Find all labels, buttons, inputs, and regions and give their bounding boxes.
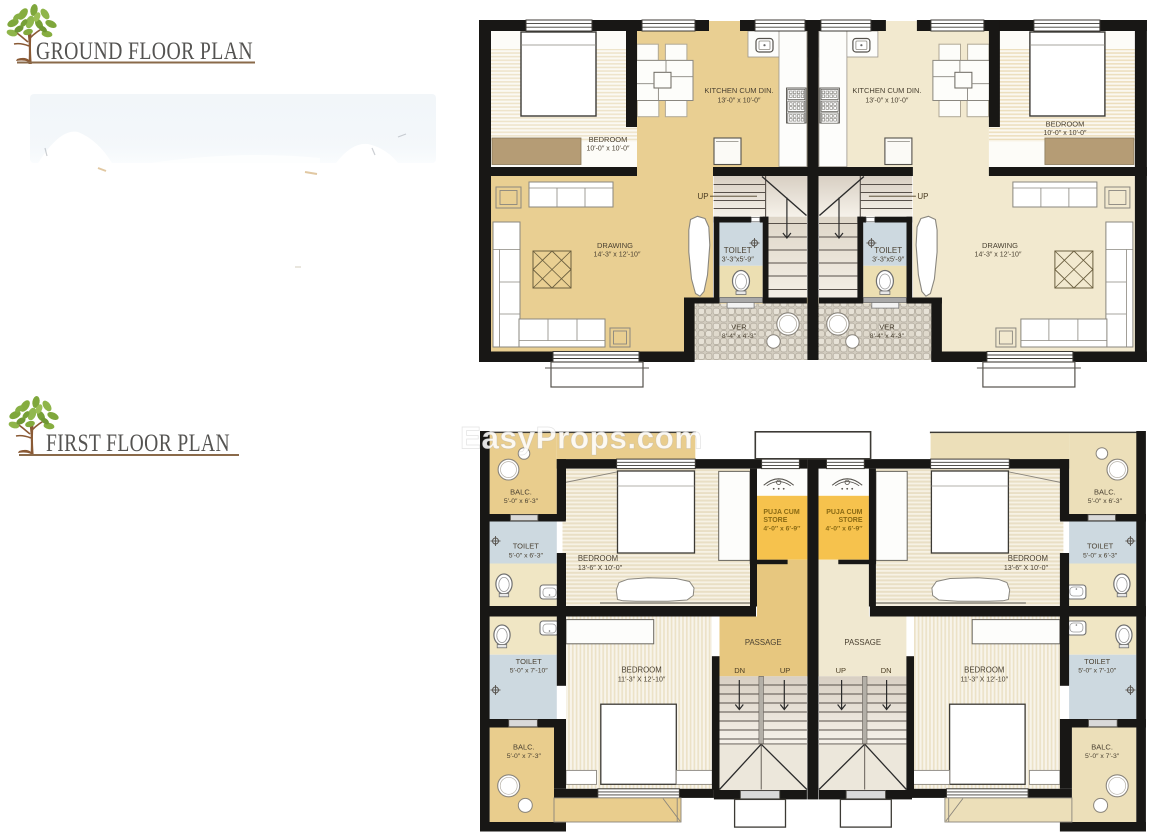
svg-text:8′-4″ x 4′-3″: 8′-4″ x 4′-3″ <box>722 333 757 340</box>
svg-text:DRAWING: DRAWING <box>982 241 1018 250</box>
svg-text:13′-0″ x 10′-0″: 13′-0″ x 10′-0″ <box>718 98 762 105</box>
svg-text:13′-6″ X 10′-0″: 13′-6″ X 10′-0″ <box>578 565 623 572</box>
svg-text:PASSAGE: PASSAGE <box>745 638 782 647</box>
svg-text:KITCHEN CUM DIN.: KITCHEN CUM DIN. <box>852 86 921 95</box>
svg-text:TOILET: TOILET <box>1087 542 1114 551</box>
svg-text:KITCHEN CUM DIN.: KITCHEN CUM DIN. <box>704 86 773 95</box>
svg-text:11′-3″ X 12′-10″: 11′-3″ X 12′-10″ <box>961 677 1009 684</box>
svg-text:BEDROOM: BEDROOM <box>621 666 661 675</box>
svg-text:UP: UP <box>697 192 708 201</box>
svg-text:8′-4″ x 4′-3″: 8′-4″ x 4′-3″ <box>870 333 905 340</box>
svg-text:5′-0″ x 7′-3″: 5′-0″ x 7′-3″ <box>1085 753 1120 760</box>
svg-text:BEDROOM: BEDROOM <box>1008 554 1048 563</box>
svg-text:5′-0″ x 6′-3″: 5′-0″ x 6′-3″ <box>509 553 544 560</box>
svg-text:BEDROOM: BEDROOM <box>578 554 618 563</box>
svg-text:10′-0″ x 10′-0″: 10′-0″ x 10′-0″ <box>1044 130 1088 137</box>
svg-text:3′-3″x5′-9″: 3′-3″x5′-9″ <box>722 255 755 264</box>
svg-text:BEDROOM: BEDROOM <box>1046 120 1085 129</box>
svg-text:PUJA CUM: PUJA CUM <box>826 509 862 516</box>
svg-text:GROUND FLOOR PLAN: GROUND FLOOR PLAN <box>36 36 253 65</box>
svg-text:5′-0″ x 7′-3″: 5′-0″ x 7′-3″ <box>507 753 542 760</box>
svg-text:UP: UP <box>917 192 928 201</box>
svg-text:DRAWING: DRAWING <box>597 241 633 250</box>
svg-text:TOILET: TOILET <box>516 657 543 666</box>
svg-text:5′-0″ x 7′-10″: 5′-0″ x 7′-10″ <box>510 668 549 675</box>
svg-text:DN: DN <box>881 666 892 675</box>
svg-text:5′-0″ x 7′-10″: 5′-0″ x 7′-10″ <box>1078 668 1117 675</box>
svg-text:4′-0″ x 6′-9″: 4′-0″ x 6′-9″ <box>826 525 864 532</box>
svg-text:5′-0″ x 6′-3″: 5′-0″ x 6′-3″ <box>504 498 539 505</box>
svg-text:TOILET: TOILET <box>1084 657 1111 666</box>
svg-text:11′-3″ X 12′-10″: 11′-3″ X 12′-10″ <box>618 677 666 684</box>
svg-text:STORE: STORE <box>839 517 863 524</box>
svg-text:13′-0″ x 10′-0″: 13′-0″ x 10′-0″ <box>865 98 909 105</box>
svg-text:UP: UP <box>780 666 790 675</box>
svg-text:BALC.: BALC. <box>1094 488 1116 497</box>
svg-text:VER: VER <box>879 323 895 332</box>
svg-text:10′-0″ x 10′-0″: 10′-0″ x 10′-0″ <box>587 146 631 153</box>
svg-text:EasyProps.com: EasyProps.com <box>460 420 703 456</box>
svg-text:13′-6″ X 10′-0″: 13′-6″ X 10′-0″ <box>1004 565 1049 572</box>
svg-text:3′-3″x5′-9″: 3′-3″x5′-9″ <box>872 255 905 264</box>
svg-text:PUJA CUM: PUJA CUM <box>763 509 799 516</box>
svg-text:14′-3″ x 12′-10″: 14′-3″ x 12′-10″ <box>594 252 641 259</box>
svg-text:FIRST FLOOR PLAN: FIRST FLOOR PLAN <box>46 428 230 457</box>
svg-text:5′-0″ x 6′-3″: 5′-0″ x 6′-3″ <box>1083 553 1118 560</box>
svg-text:BALC.: BALC. <box>510 488 532 497</box>
svg-text:BEDROOM: BEDROOM <box>589 135 628 144</box>
svg-text:BALC.: BALC. <box>513 743 535 752</box>
svg-text:4′-0″ x 6′-9″: 4′-0″ x 6′-9″ <box>763 525 801 532</box>
svg-text:14′-3″ x 12′-10″: 14′-3″ x 12′-10″ <box>975 252 1022 259</box>
svg-text:STORE: STORE <box>763 517 787 524</box>
svg-text:5′-0″ x 6′-3″: 5′-0″ x 6′-3″ <box>1088 498 1123 505</box>
svg-text:TOILET: TOILET <box>513 542 540 551</box>
svg-text:BALC.: BALC. <box>1091 743 1113 752</box>
svg-text:DN: DN <box>734 666 745 675</box>
svg-text:UP: UP <box>836 666 846 675</box>
svg-text:VER: VER <box>731 323 747 332</box>
svg-text:PASSAGE: PASSAGE <box>844 638 881 647</box>
svg-text:BEDROOM: BEDROOM <box>964 666 1004 675</box>
